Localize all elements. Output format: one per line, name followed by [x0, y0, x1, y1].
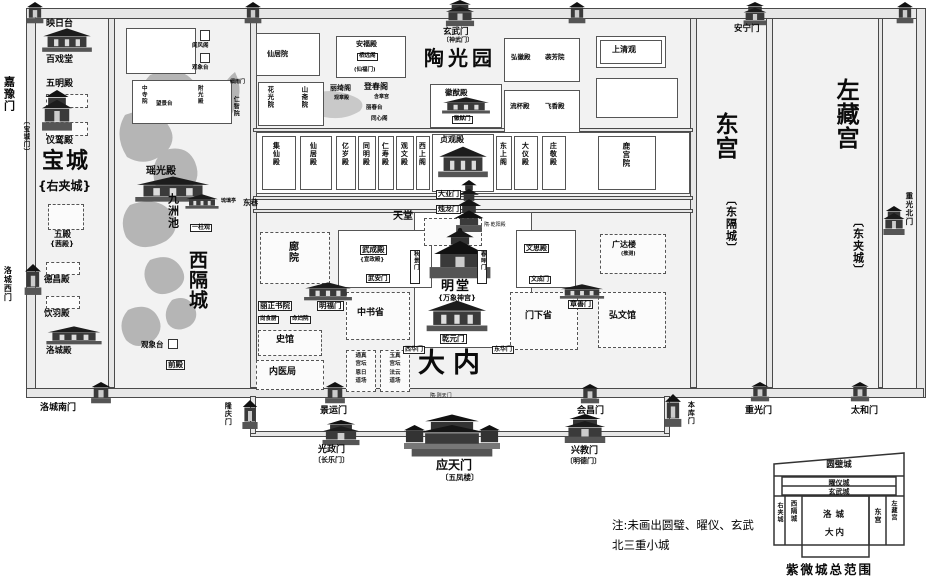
- luochengximen-label: 洛城西门: [3, 266, 11, 318]
- l-176: 鹿宫院: [622, 142, 630, 188]
- sq-66: [168, 339, 178, 349]
- l-175: 庄敬殿: [549, 142, 556, 186]
- anningmen-label: 安宁门: [734, 25, 760, 34]
- l-163: 飞香殿: [545, 103, 565, 110]
- l-162: 流杯殿: [510, 103, 530, 110]
- l-178: 东巷: [243, 199, 258, 207]
- l-135: 望景台: [156, 102, 173, 108]
- ml-195: 玉真 宫坛 法云 道场: [385, 352, 405, 385]
- xianju-court: [256, 33, 320, 76]
- tiantang-label: 天堂: [393, 212, 413, 223]
- b-102: 武安门: [366, 274, 390, 283]
- xuanwumen-tower: [444, 0, 476, 27]
- zuocanggong-label: 左藏宫: [833, 78, 857, 186]
- jiayumen-tower: [40, 90, 74, 132]
- l-117: 映日台: [46, 20, 73, 29]
- legend-youjiacheng: 右夹城: [775, 502, 784, 542]
- luochengximen-tower: [22, 264, 44, 296]
- chongguangbeimen-label: 重光北门: [905, 192, 913, 244]
- c-21: [126, 28, 196, 74]
- l-150: 花光院: [266, 86, 273, 120]
- xingjiaomen-tower: [562, 414, 608, 444]
- l-155: 观章殿: [334, 96, 349, 101]
- l-177: 贞观殿: [440, 136, 464, 144]
- l-168: 亿岁殿: [341, 142, 348, 186]
- wall-tower: [566, 2, 588, 24]
- l-211: 太和门: [851, 407, 878, 416]
- l-127: 洛城殿: [46, 347, 72, 356]
- l-209: 本库门: [687, 401, 694, 431]
- legend-danei: 大内: [802, 526, 869, 538]
- jiayumen-label: 嘉豫门: [3, 76, 15, 122]
- south-wall: [26, 388, 924, 398]
- l-173: 东上阁: [499, 142, 506, 186]
- l-143: 观象台: [141, 341, 164, 349]
- l-203: 〔长乐门〕: [314, 457, 349, 464]
- l-161: 袭芳院: [545, 54, 565, 61]
- l-140: 琉璃亭: [221, 199, 236, 204]
- l-138: 仁智院: [232, 96, 238, 122]
- l-160: 弘徽殿: [511, 54, 531, 61]
- palace-map: 大业门烛龙门乾元门西华门东华门武安门文成门明福门丽正书院尚食厨命妇院章善门徽猷门…: [0, 0, 929, 578]
- b-106: 尚食厨: [258, 316, 279, 324]
- legend-yuanbicheng: 圆璧城: [773, 458, 905, 470]
- l-167: 仙居殿: [309, 142, 316, 186]
- legend-zuocanggong: 左藏宫: [889, 500, 898, 544]
- l-208: 会昌门: [577, 407, 604, 416]
- l-154: 丽绮阁: [330, 85, 351, 92]
- jingyunmen-tower: [322, 382, 348, 404]
- mingtang-south-gate: [424, 300, 490, 334]
- l-158: 丽春台: [366, 106, 383, 112]
- l-122: {右夹城}: [38, 180, 91, 193]
- l-206: 兴教门: [571, 447, 598, 456]
- luochengdian-hall: [44, 326, 104, 346]
- l-191: 弘文馆: [609, 312, 636, 321]
- yaoguangdian-label: 瑶光殿: [146, 167, 176, 178]
- l-172: 西上阁: [418, 142, 425, 186]
- b-112: 春晖门: [477, 250, 487, 284]
- qianyuanmen: 乾元门: [440, 334, 467, 344]
- l-156: 登春阁: [364, 83, 388, 91]
- l-182: {万象神宫}: [438, 295, 476, 302]
- chongguangbeimen-tower: [882, 206, 906, 236]
- ml-194: 通真 宫坛 恩日 道场: [351, 352, 371, 385]
- l-151: 山斋院: [300, 86, 307, 120]
- l-201: 景运门: [320, 407, 347, 416]
- l-166: 集仙殿: [272, 142, 279, 186]
- b-109: 徽猷门: [452, 116, 473, 124]
- l-183: {宣政殿}: [360, 258, 384, 264]
- l-149: 仙居院: [267, 51, 288, 58]
- donggong-label: 东宫: [712, 112, 736, 182]
- mingtang-label: 明堂: [441, 280, 471, 294]
- c-31: [596, 78, 678, 118]
- corner-tower: [894, 2, 916, 24]
- b-110: 前殿: [166, 360, 185, 370]
- b-101: 东华门: [492, 346, 514, 354]
- l-210: 重光门: [745, 407, 772, 416]
- l-119: 五明殿: [46, 80, 73, 89]
- l-125: 德昌殿: [44, 276, 70, 285]
- huichangmen-tower: [578, 384, 602, 404]
- legend-caption: 紫微城总范围: [786, 559, 873, 578]
- b-97: 大业门: [436, 190, 461, 199]
- l-192: 广达楼: [612, 241, 636, 249]
- l-136: 附光殿: [196, 85, 202, 109]
- danei-label: 大内: [418, 350, 488, 378]
- sq-64: [200, 30, 210, 41]
- baixitang-hall: [40, 28, 94, 54]
- b-116: 一柱观: [190, 224, 212, 232]
- l-187: 史馆: [276, 336, 294, 345]
- b-114: 武成殿: [360, 245, 387, 255]
- b-98: 烛龙门: [436, 205, 461, 214]
- l-165: 上清观: [612, 46, 636, 54]
- yingtianmen-complex: [404, 413, 500, 458]
- l-193: (推测): [621, 252, 636, 257]
- l-134: 中寺院: [140, 85, 146, 109]
- benkumen-tower: [662, 394, 684, 428]
- l-126: 饮羽殿: [44, 310, 70, 319]
- huiyoudian-hall: [440, 97, 492, 115]
- l-197: 〔东隔城〕: [725, 194, 737, 260]
- l-186: 廊院: [286, 241, 297, 277]
- xigecheng-label: 西隔城: [186, 250, 206, 350]
- b-108: 章善门: [568, 300, 593, 309]
- zhenguandian-hall: [436, 146, 490, 180]
- chongguangmen-tower: [748, 382, 772, 402]
- note-line-2: 北三重小城: [612, 535, 754, 555]
- wall-13: [766, 18, 773, 388]
- liuliting-hall: [184, 194, 220, 210]
- mingfumen-gatehouse: [302, 282, 354, 302]
- wall-12: [690, 18, 697, 388]
- l-185: 隋·则天门: [430, 394, 452, 399]
- guangzhengmen-tower: [320, 420, 362, 446]
- l-169: 同明殿: [362, 142, 369, 186]
- b-113: 栖远阁: [357, 53, 378, 61]
- l-207: 〔明德门〕: [566, 458, 601, 465]
- b-103: 文成门: [529, 276, 551, 284]
- b-111: 秋景门: [410, 250, 420, 284]
- l-199: 〔东夹城〕: [852, 216, 864, 286]
- b-105: 丽正书院: [258, 301, 292, 311]
- l-174: 大仪殿: [521, 142, 528, 186]
- d-53: [46, 296, 80, 309]
- d-51: [48, 204, 84, 230]
- sq-65: [200, 53, 210, 63]
- luochengnanmen-label: 洛城南门: [40, 404, 76, 413]
- c-27: [504, 90, 580, 136]
- b-104: 明福门: [317, 301, 344, 311]
- legend-luocheng: 洛城: [802, 508, 869, 520]
- corner-tower: [24, 2, 46, 24]
- b-107: 命妇院: [290, 316, 311, 324]
- l-205: 〔五凤楼〕: [441, 474, 479, 482]
- c-22: [132, 80, 232, 124]
- wall-tower: [242, 2, 264, 24]
- legend-xuanwucheng: 玄武城: [773, 487, 905, 497]
- taoguangyuan-label: 陶光园: [424, 48, 496, 69]
- l-200: 隆庆门: [224, 402, 231, 432]
- note-line-1: 注:未画出圆璧、曜仪、玄武: [612, 515, 754, 535]
- legend-donggong: 东宫: [873, 508, 883, 538]
- l-129: 〔宝城门〕: [22, 118, 29, 162]
- wall-14: [878, 18, 883, 388]
- d-52: [46, 262, 80, 275]
- l-152: 安福殿: [356, 41, 377, 48]
- zhangshanmen-gatehouse: [558, 284, 606, 300]
- l-118: 百戏堂: [46, 56, 73, 65]
- anningmen-tower: [742, 2, 768, 26]
- taihemen-tower: [848, 382, 872, 402]
- legend-diagram: 圆璧城 曜仪城 玄武城 右夹城 西隔城 洛城 大内 东宫 左藏宫: [773, 450, 905, 562]
- l-133: 观象台: [192, 66, 209, 72]
- l-132: 阆风阁: [192, 44, 209, 50]
- jiuzhouchi-label: 九洲池: [167, 193, 179, 239]
- l-171: 观文殿: [400, 142, 407, 186]
- l-120: 仪鸾殿: [46, 137, 73, 146]
- l-137: 细雨门: [230, 80, 245, 85]
- l-159: 同心阁: [371, 117, 388, 123]
- l-146: 〔神武门〕: [443, 38, 473, 44]
- b-115: 文思殿: [524, 244, 549, 253]
- west-wall: [26, 8, 36, 398]
- east-wall: [916, 8, 926, 398]
- l-164: 徽猷殿: [445, 89, 468, 97]
- south-wall-tower: [88, 382, 114, 404]
- l-153: (仙福门): [354, 68, 376, 74]
- map-note: 注:未画出圆璧、曜仪、玄武 北三重小城: [612, 515, 754, 555]
- baocheng-label: 宝城: [42, 150, 90, 173]
- l-189: 中书省: [357, 309, 384, 318]
- l-123: 五殿: [54, 231, 71, 240]
- l-157: 含章宫: [374, 95, 389, 100]
- yingtianmen-label: 应天门: [436, 459, 472, 472]
- wall-10: [108, 18, 115, 388]
- l-202: 光政门: [318, 446, 345, 455]
- l-190: 门下省: [525, 312, 552, 321]
- l-124: {茜殿}: [50, 241, 74, 248]
- l-188: 内医局: [269, 368, 296, 377]
- longqingmen-tower: [240, 400, 260, 430]
- xuanwumen-label: 玄武门: [443, 28, 469, 37]
- legend-xigecheng: 西隔城: [788, 500, 798, 542]
- l-170: 仁寿殿: [381, 142, 388, 186]
- l-180: 隋·乾阳殿: [484, 223, 506, 228]
